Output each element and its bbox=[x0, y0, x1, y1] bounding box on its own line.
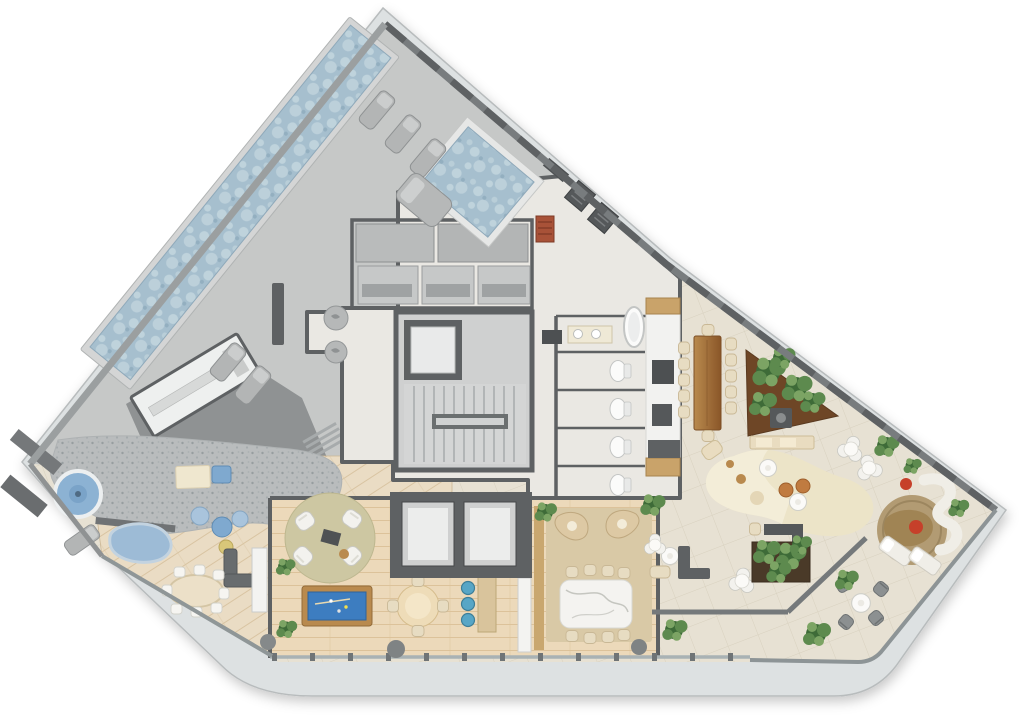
storage-cabinet bbox=[252, 548, 267, 612]
stair-core bbox=[396, 312, 532, 470]
stone-pouf bbox=[631, 639, 647, 655]
appliance-icon bbox=[652, 360, 674, 384]
side-table bbox=[339, 549, 349, 559]
wall-panel bbox=[518, 578, 531, 652]
toilet-icon bbox=[610, 475, 631, 496]
pouf bbox=[779, 483, 793, 497]
outdoor-dining-table bbox=[694, 336, 721, 430]
side-table bbox=[760, 460, 777, 477]
floor-plan-canvas bbox=[0, 0, 1024, 721]
sauna-bench bbox=[426, 284, 470, 297]
elevator-car bbox=[411, 327, 455, 373]
pouf bbox=[232, 511, 248, 527]
terrace-desk bbox=[750, 523, 813, 583]
lounge-chair bbox=[650, 566, 670, 578]
elevator-bank bbox=[390, 492, 532, 578]
wood-bench bbox=[646, 458, 680, 476]
wood-bench bbox=[646, 298, 680, 314]
grill-icon bbox=[542, 330, 562, 344]
pouf bbox=[191, 507, 209, 525]
sauna-bench bbox=[482, 284, 526, 297]
toilet-icon bbox=[610, 399, 631, 420]
square-pouf bbox=[212, 466, 231, 483]
toilet-icon bbox=[610, 437, 631, 458]
billiards-table bbox=[302, 586, 372, 626]
pouf bbox=[750, 491, 764, 505]
bistro-table bbox=[852, 594, 871, 613]
floor-plan-page bbox=[0, 0, 1024, 721]
desk-chair bbox=[750, 523, 761, 535]
appliance-icon bbox=[652, 404, 672, 426]
pouf bbox=[212, 517, 232, 537]
private-dining bbox=[532, 494, 666, 658]
fire-pit bbox=[770, 408, 792, 428]
sauna-heater bbox=[536, 216, 554, 242]
pouf bbox=[796, 479, 810, 493]
bar-stool bbox=[462, 582, 475, 595]
stool bbox=[736, 474, 746, 484]
stone-pouf bbox=[260, 634, 276, 650]
red-cushion bbox=[909, 520, 923, 534]
spa-pool bbox=[55, 471, 101, 517]
elevator-car bbox=[408, 508, 448, 560]
bar-counter bbox=[462, 576, 497, 632]
sauna-bench bbox=[362, 284, 412, 297]
sink-icon bbox=[592, 330, 601, 339]
red-pouf bbox=[900, 478, 912, 490]
side-table bbox=[790, 494, 807, 511]
toilet-icon bbox=[610, 361, 631, 382]
counter-block bbox=[648, 440, 680, 458]
bar-stool bbox=[462, 598, 475, 611]
bar-stool bbox=[462, 614, 475, 627]
stone-pouf bbox=[387, 640, 405, 658]
deck-bench bbox=[272, 283, 284, 345]
wood-sideboard bbox=[534, 506, 544, 650]
elevator-car bbox=[470, 508, 510, 560]
sink-icon bbox=[574, 330, 583, 339]
play-mat bbox=[176, 465, 211, 488]
